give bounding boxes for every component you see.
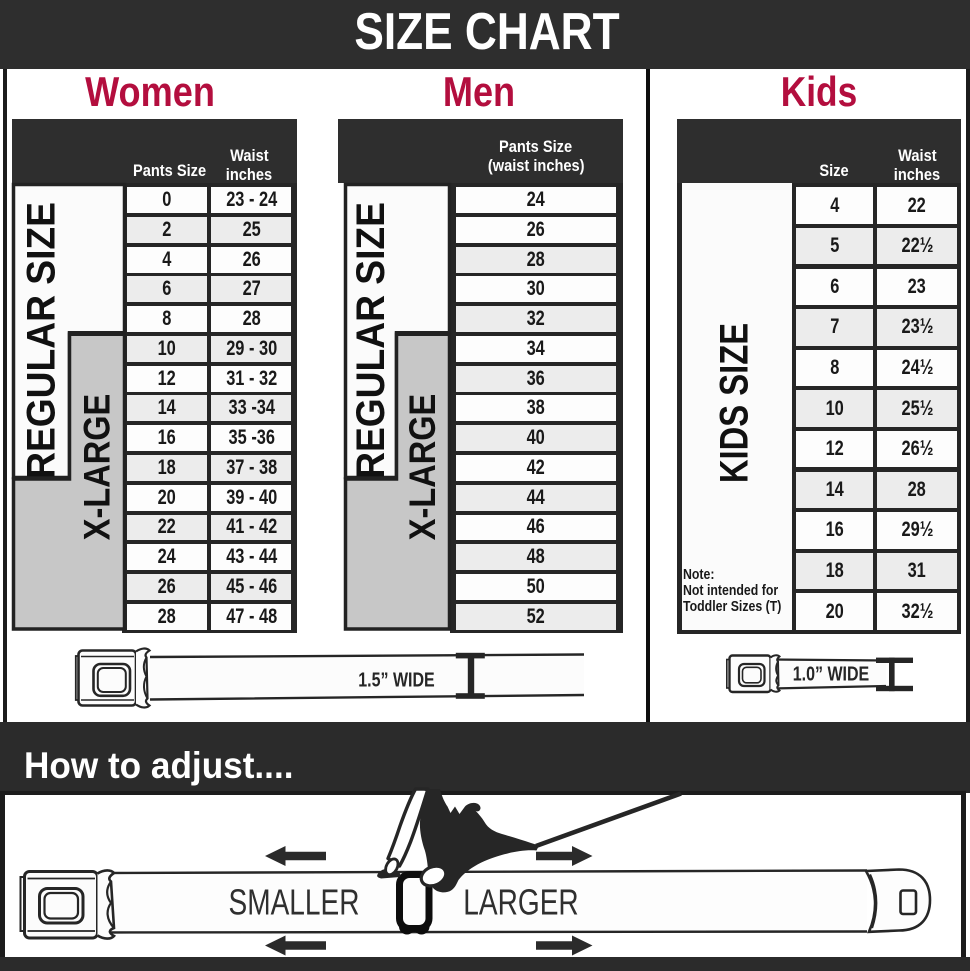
svg-text:LARGER: LARGER [463,882,578,922]
svg-text:SMALLER: SMALLER [228,882,359,922]
